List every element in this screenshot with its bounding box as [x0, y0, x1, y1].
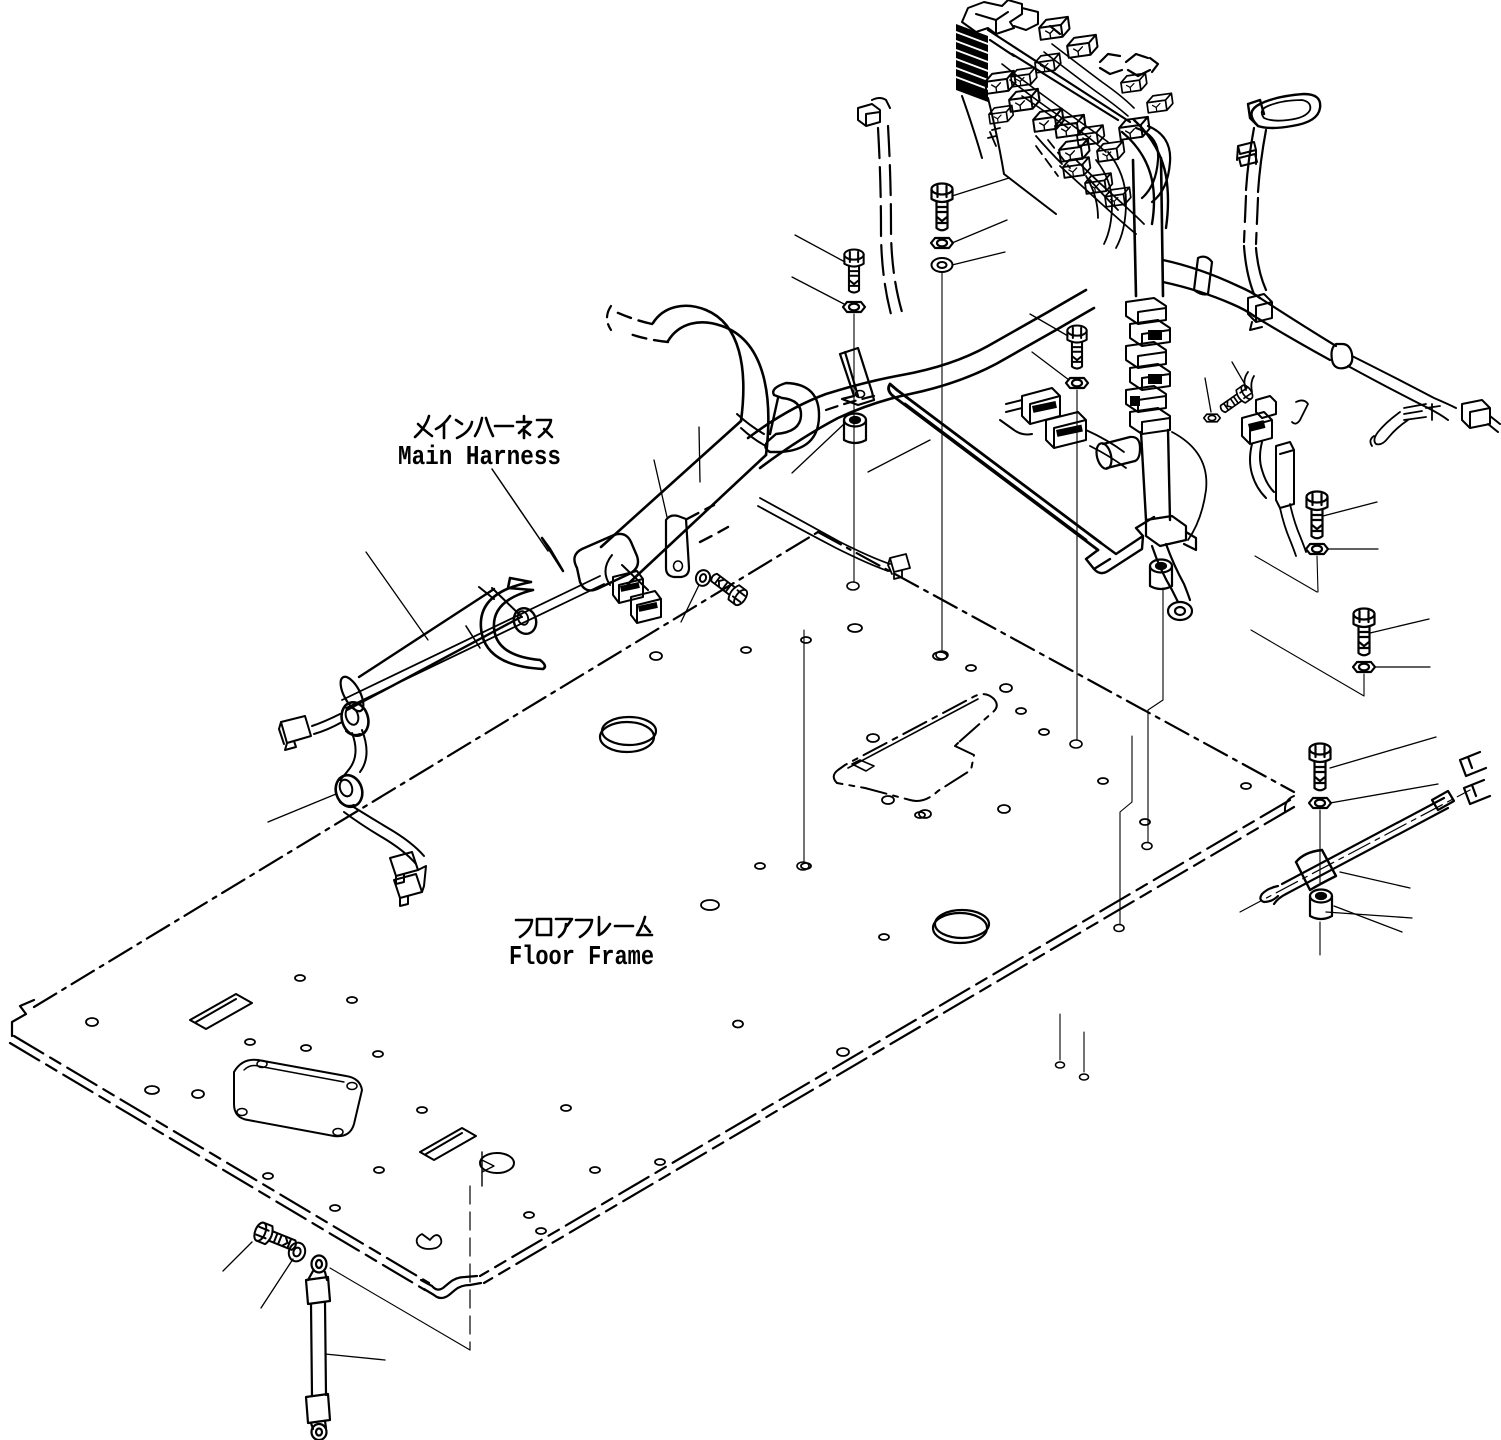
svg-text:Main Harness: Main Harness	[398, 443, 561, 473]
svg-text:Floor Frame: Floor Frame	[509, 943, 654, 973]
